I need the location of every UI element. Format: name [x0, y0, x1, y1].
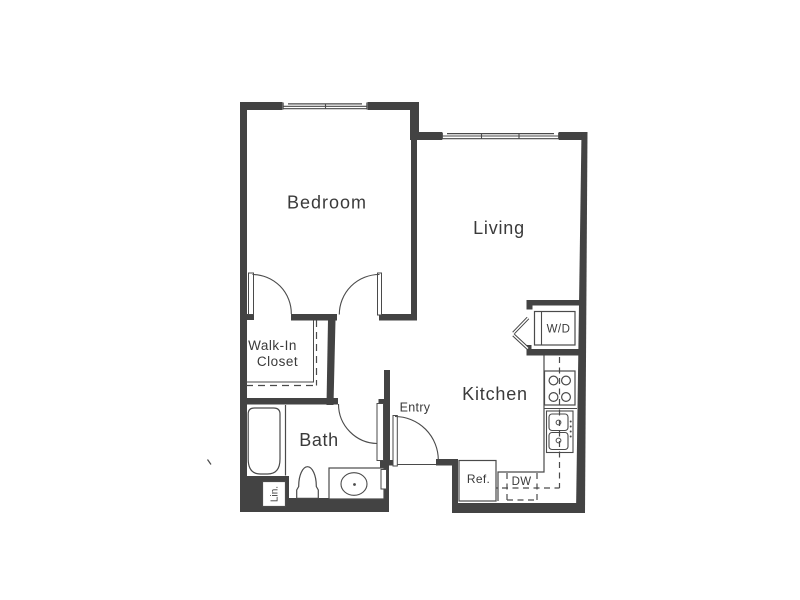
svg-text:DW: DW — [512, 476, 532, 488]
svg-text:Kitchen: Kitchen — [462, 384, 528, 404]
svg-text:Ref.: Ref. — [467, 472, 490, 486]
svg-text:Living: Living — [473, 218, 525, 238]
svg-text:Lin.: Lin. — [270, 486, 281, 502]
svg-text:Entry: Entry — [400, 401, 431, 415]
svg-text:Closet: Closet — [257, 354, 298, 369]
svg-text:Bath: Bath — [299, 430, 338, 450]
svg-text:Bedroom: Bedroom — [287, 193, 367, 213]
svg-text:Walk-In: Walk-In — [248, 338, 297, 353]
svg-text:W/D: W/D — [547, 324, 571, 336]
